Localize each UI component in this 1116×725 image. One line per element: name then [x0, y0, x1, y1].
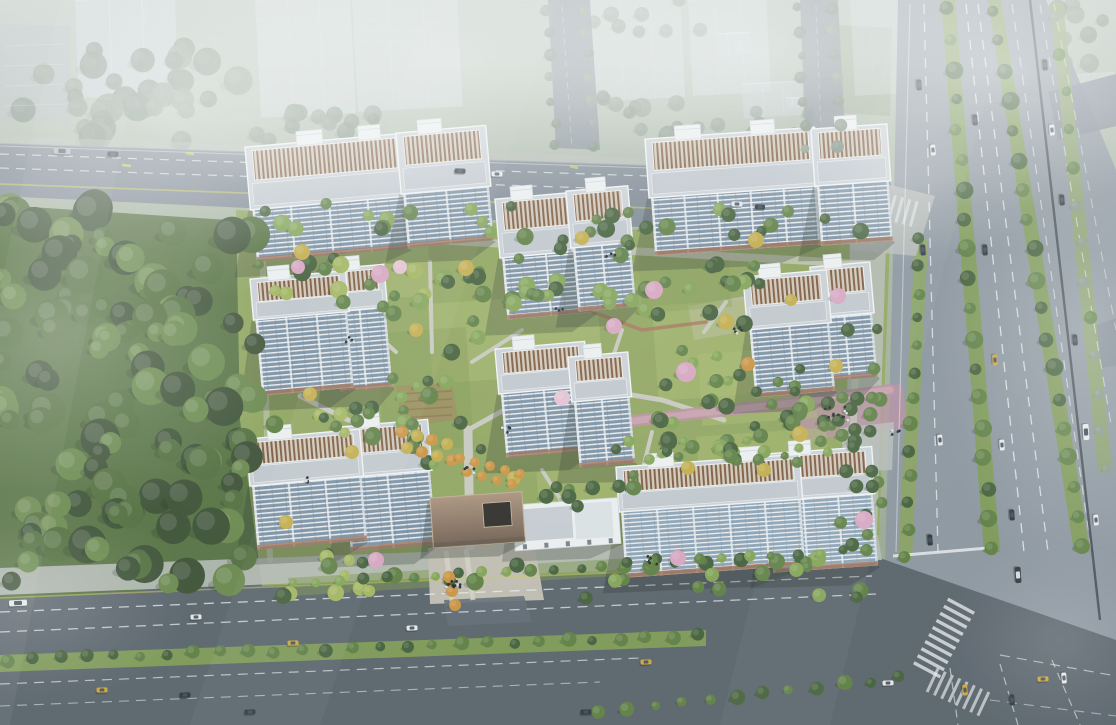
- aerial-rendering-canvas: [0, 0, 1116, 725]
- aerial-render-viewport: [0, 0, 1116, 725]
